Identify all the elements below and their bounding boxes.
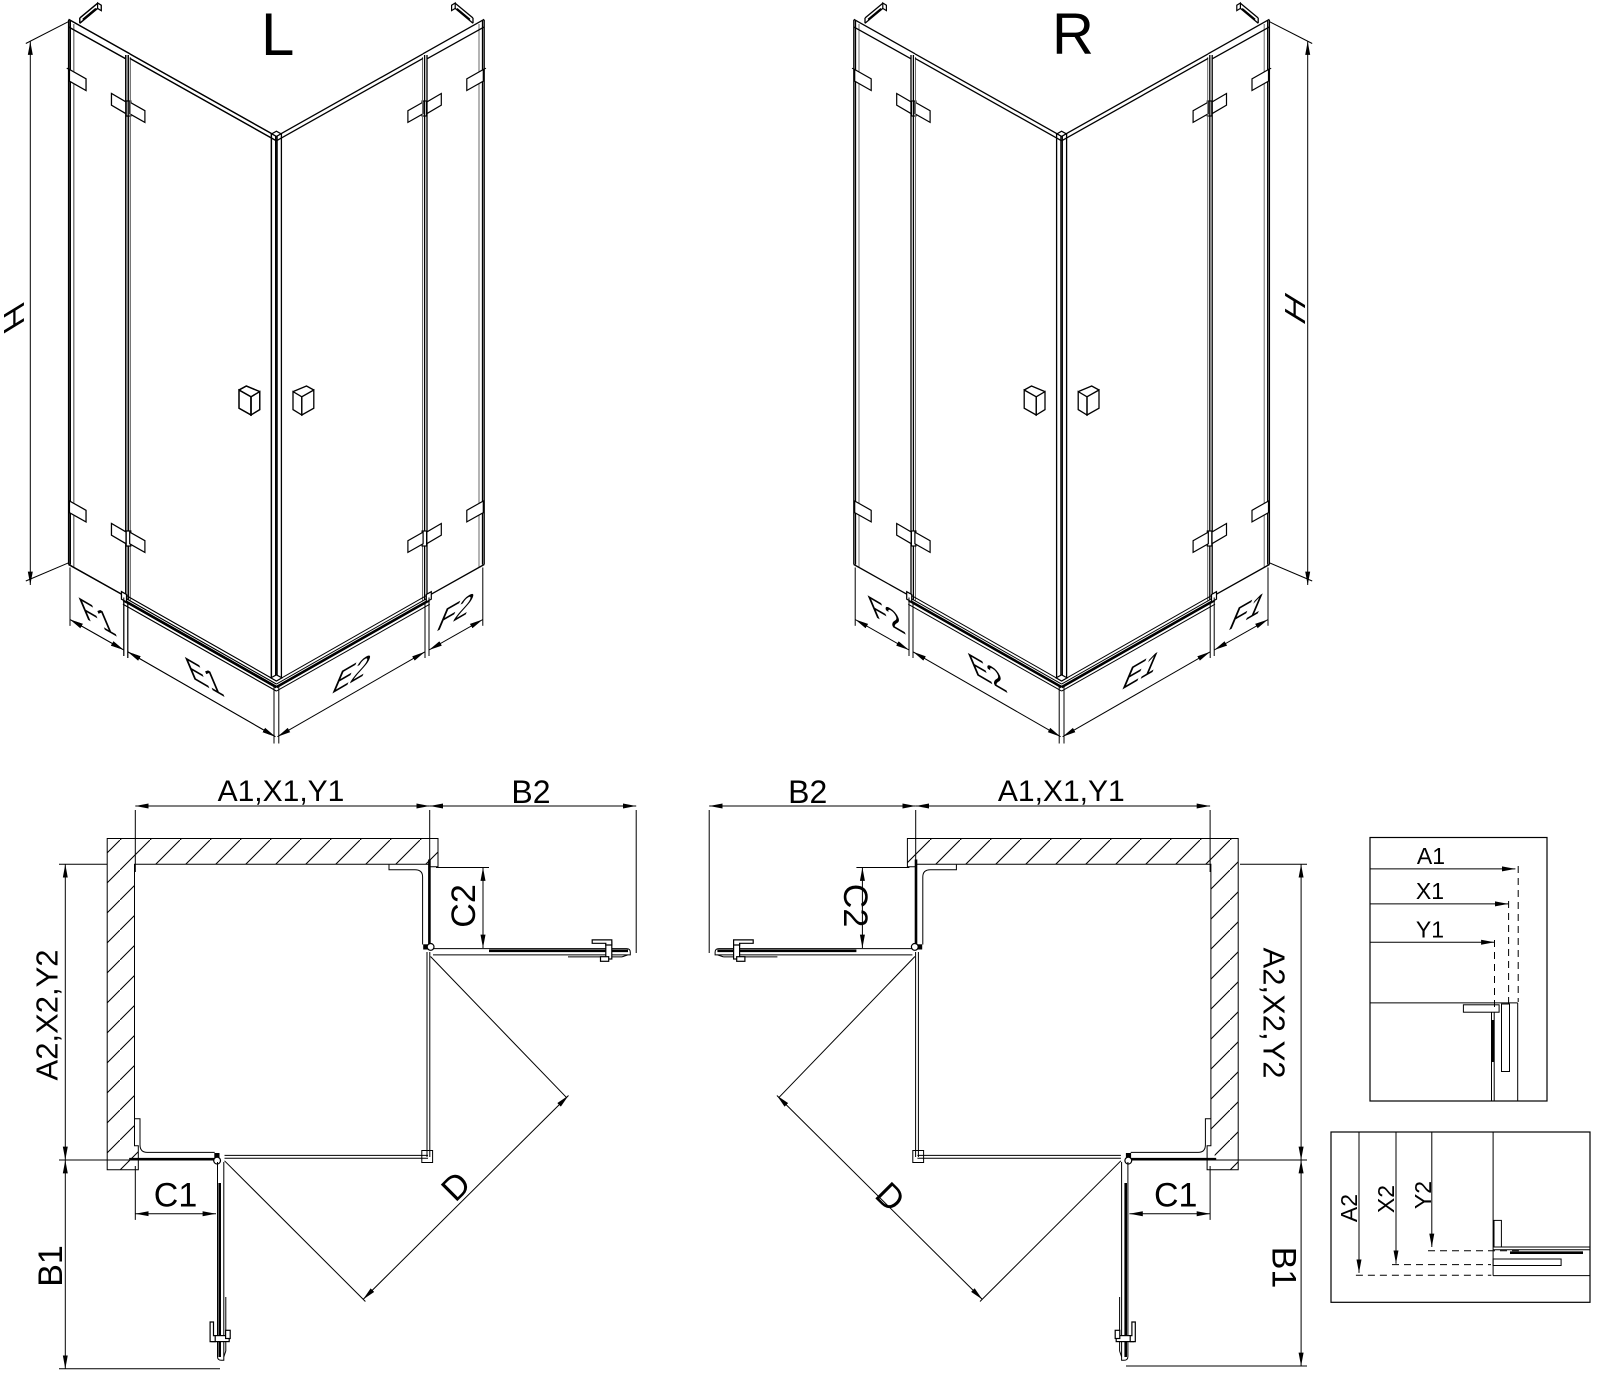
svg-text:B1: B1 <box>32 1245 70 1287</box>
svg-text:A1,X1,Y1: A1,X1,Y1 <box>998 775 1125 808</box>
svg-text:A2: A2 <box>1336 1194 1362 1222</box>
svg-text:A2,X2,Y2: A2,X2,Y2 <box>1257 948 1292 1079</box>
svg-text:A1: A1 <box>1417 843 1445 869</box>
svg-text:B1: B1 <box>1265 1247 1303 1289</box>
svg-text:B2: B2 <box>788 774 827 810</box>
svg-text:B2: B2 <box>511 774 550 810</box>
svg-text:C2: C2 <box>445 884 483 927</box>
svg-text:C1: C1 <box>154 1177 197 1215</box>
svg-text:X1: X1 <box>1416 878 1444 904</box>
svg-text:A2,X2,Y2: A2,X2,Y2 <box>30 950 65 1081</box>
svg-text:A1,X1,Y1: A1,X1,Y1 <box>218 775 345 808</box>
svg-text:R: R <box>1052 2 1094 67</box>
svg-text:X2: X2 <box>1373 1185 1399 1213</box>
svg-text:C1: C1 <box>1154 1177 1197 1215</box>
svg-text:Y1: Y1 <box>1416 917 1444 943</box>
svg-text:Y2: Y2 <box>1410 1181 1436 1209</box>
svg-text:C2: C2 <box>836 884 874 927</box>
svg-text:L: L <box>261 1 294 68</box>
